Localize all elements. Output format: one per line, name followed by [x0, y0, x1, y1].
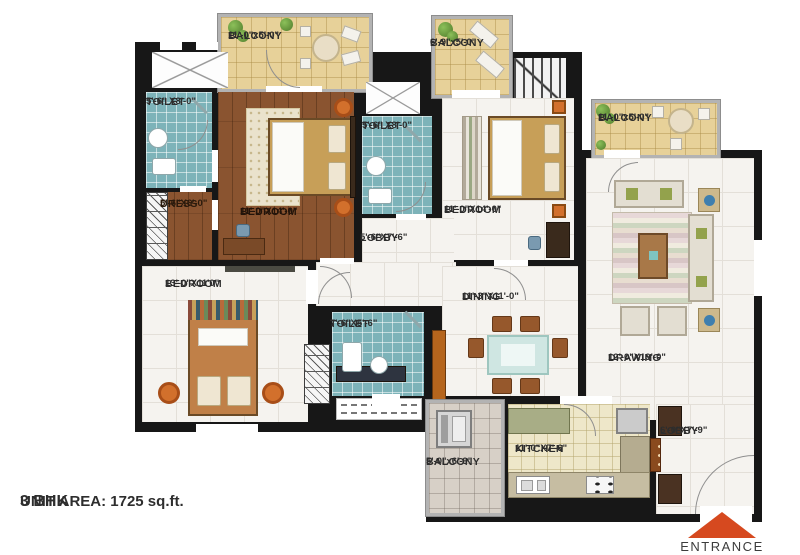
patio-chair — [300, 58, 311, 69]
table-decor — [649, 251, 658, 260]
patio-table — [312, 34, 340, 62]
side-table — [698, 308, 720, 332]
sofa — [614, 180, 684, 208]
kitchen-sink — [516, 476, 550, 494]
pillow — [227, 376, 251, 406]
bed-sheet — [272, 122, 304, 192]
balcony-door-opening — [604, 150, 640, 158]
desk — [546, 222, 570, 258]
bed-sheet — [198, 328, 248, 346]
bed — [488, 116, 566, 200]
floor-plan: BALCONY 11'-0"x5'-0" BALCONY 6'-9"x5'-0"… — [0, 0, 800, 555]
dining-table-top — [501, 344, 535, 366]
armchair — [620, 306, 650, 336]
foyer-bench — [658, 474, 682, 504]
dining-table — [487, 335, 549, 375]
window-opening — [754, 240, 762, 296]
door-opening — [372, 394, 400, 406]
door-opening — [320, 258, 354, 264]
dining-chair — [468, 338, 484, 358]
pillow — [544, 124, 560, 154]
cabinet — [432, 330, 446, 402]
dining-chair — [492, 378, 512, 394]
washing-machine-handle — [441, 415, 448, 443]
armchair — [657, 306, 687, 336]
dining-chair — [492, 316, 512, 332]
bed — [188, 300, 258, 416]
coffee-table — [638, 233, 668, 279]
rug — [462, 116, 482, 200]
headboard — [350, 116, 356, 198]
decor-bowl — [704, 315, 715, 326]
pillow — [544, 162, 560, 192]
fridge — [616, 408, 648, 434]
ottoman — [334, 98, 353, 117]
unit-area: UNIT AREA: 1725 sq.ft. — [20, 493, 184, 510]
door-opening — [212, 150, 218, 182]
patio-chair — [652, 106, 664, 118]
ottoman — [334, 198, 353, 217]
dining-chair — [520, 378, 540, 394]
cushion — [696, 276, 707, 287]
door-opening — [494, 260, 528, 266]
door-opening — [212, 200, 218, 230]
pillow — [328, 162, 346, 190]
sink-basin — [537, 480, 546, 491]
desk-chair — [236, 224, 250, 237]
door-opening — [560, 396, 612, 404]
washing-machine-door — [452, 416, 466, 442]
ottoman — [158, 382, 180, 404]
cushion — [660, 188, 672, 200]
stool — [552, 100, 566, 114]
stove — [586, 476, 614, 494]
toilet-seat — [152, 158, 176, 175]
desk-chair — [528, 236, 541, 250]
dining-chair — [552, 338, 568, 358]
door-opening — [160, 42, 182, 50]
ottoman — [262, 382, 284, 404]
cushion — [626, 188, 638, 200]
decor-bowl — [704, 195, 715, 206]
dash-line — [341, 412, 417, 414]
door-opening — [180, 186, 206, 192]
cushion — [696, 228, 707, 239]
patio-table — [668, 108, 694, 134]
stool — [552, 204, 566, 218]
pillow — [328, 125, 346, 153]
wash-basin — [370, 356, 388, 374]
wall-rack — [650, 438, 661, 472]
sink-basin — [521, 480, 533, 491]
dining-chair — [520, 316, 540, 332]
entrance-label: ENTRANCE — [674, 539, 770, 554]
patio-chair — [670, 138, 682, 150]
washing-machine — [436, 410, 472, 448]
patio-chair — [698, 108, 710, 120]
wash-basin — [148, 128, 168, 148]
door-opening — [396, 214, 426, 220]
desk — [223, 238, 265, 255]
sofa-chaise — [688, 214, 714, 302]
plant-icon — [596, 140, 606, 150]
toilet-seat — [342, 342, 362, 372]
toilet-seat — [368, 188, 392, 204]
window-opening — [196, 424, 258, 432]
bed-throw — [188, 300, 258, 320]
wardrobe-bedroom — [304, 344, 330, 404]
bed-sheet — [492, 120, 522, 196]
door-opening — [306, 270, 318, 304]
door-opening — [196, 42, 218, 50]
window-opening — [452, 90, 500, 98]
curtain — [225, 266, 295, 272]
kitchen-counter — [508, 408, 570, 434]
side-table — [698, 188, 720, 212]
elevator-shaft — [366, 82, 420, 114]
elevator-shaft — [152, 52, 228, 88]
bed — [268, 118, 352, 196]
pillow — [197, 376, 221, 406]
wash-basin — [366, 156, 386, 176]
patio-chair — [300, 26, 311, 37]
entrance-arrow-icon — [688, 512, 756, 538]
